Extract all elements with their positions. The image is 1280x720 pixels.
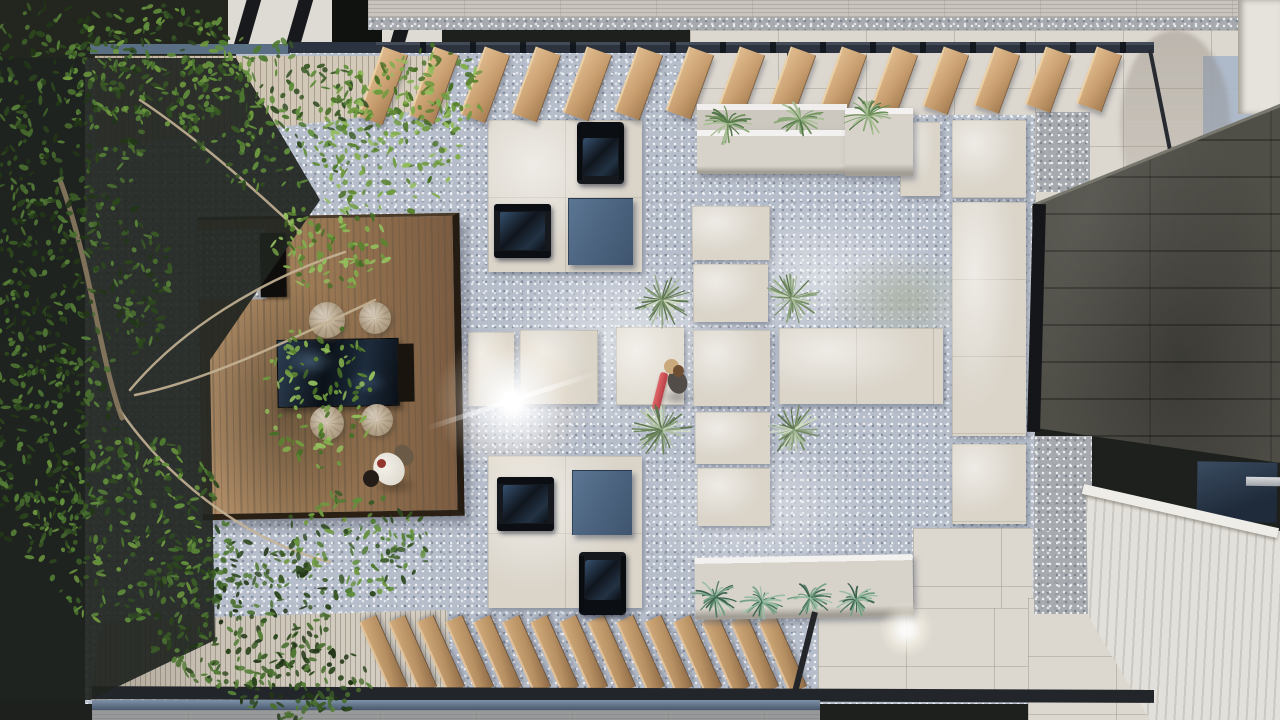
tree-leaf: [28, 171, 35, 177]
chair-arm: [577, 126, 582, 180]
tree-leaf: [16, 240, 25, 249]
tree-leaf: [18, 163, 29, 172]
tree-leaf: [80, 281, 85, 284]
tree-leaf: [67, 528, 75, 535]
tree-leaf: [59, 589, 64, 594]
tree-leaf: [60, 547, 66, 553]
tree-leaf: [72, 67, 79, 75]
tree-leaf: [59, 289, 66, 297]
tree-leaf: [69, 192, 80, 199]
tree-leaf: [69, 514, 73, 522]
tree-leaf: [22, 219, 27, 221]
tree-leaf: [52, 465, 64, 474]
tree-leaf: [8, 377, 20, 388]
tree-leaf: [60, 241, 67, 245]
tree-leaf: [49, 291, 58, 300]
tree-leaf: [74, 365, 80, 371]
tree-leaf: [10, 414, 20, 419]
tree-leaf: [0, 113, 6, 122]
tree-leaf: [45, 305, 51, 310]
tree-leaf: [66, 384, 71, 393]
tree-leaf: [10, 348, 20, 358]
chair-arm: [579, 556, 584, 612]
tree-leaf: [13, 290, 21, 300]
tree-leaf: [53, 301, 63, 307]
tree-leaf: [76, 424, 82, 430]
tree-leaf: [15, 116, 21, 121]
tree-leaf: [19, 498, 25, 507]
tree-leaf: [61, 219, 71, 223]
tree-leaf: [73, 493, 79, 502]
tree-leaf: [53, 71, 60, 75]
tree-leaf: [10, 103, 21, 111]
tree-leaf: [45, 329, 53, 336]
tree-leaf: [7, 74, 13, 83]
tree-leaf: [51, 495, 61, 506]
tree-leaf: [39, 369, 46, 375]
tree-leaf: [8, 170, 12, 176]
tree-leaf: [0, 400, 4, 406]
tree-leaf: [36, 297, 40, 306]
tree-leaf: [24, 165, 29, 171]
tree-leaf: [9, 144, 16, 153]
tree-leaf: [72, 150, 81, 158]
tree-leaf: [55, 199, 63, 210]
tree-leaf: [24, 502, 31, 508]
tree-leaf: [2, 494, 9, 502]
tree-leaf: [72, 605, 79, 615]
lens-flare-small: [878, 602, 934, 658]
tree-leaf: [0, 502, 5, 507]
tree-leaf: [56, 301, 62, 307]
white-column: [1238, 0, 1280, 114]
tree-leaf: [77, 498, 85, 505]
tree-leaf: [68, 360, 74, 366]
tree-leaf: [30, 367, 39, 376]
tree-leaf: [76, 356, 84, 367]
tree-leaf: [35, 239, 38, 245]
tree-leaf: [24, 239, 31, 249]
tree-leaf: [37, 86, 43, 94]
tree-leaf: [35, 523, 40, 526]
tree-leaf: [54, 452, 62, 461]
tree-leaf: [41, 416, 49, 425]
tree-leaf: [14, 118, 23, 128]
tree-leaf: [57, 383, 65, 394]
tree-leaf: [78, 525, 83, 530]
tree-leaf: [46, 240, 51, 246]
tree-leaf: [31, 183, 36, 191]
deck-dining-table: [277, 338, 400, 408]
tree-leaf: [25, 201, 33, 210]
tree-leaf: [77, 117, 84, 128]
tree-leaf: [60, 238, 67, 244]
tree-leaf: [0, 97, 3, 105]
tree-leaf: [10, 177, 19, 186]
tree-leaf: [75, 390, 81, 397]
tree-leaf: [65, 540, 70, 549]
tree-leaf: [67, 88, 77, 96]
tree-leaf: [27, 208, 31, 214]
tree-leaf: [60, 474, 67, 480]
tree-leaf: [37, 77, 46, 88]
tree-leaf: [61, 230, 71, 241]
pouf-stool: [359, 302, 391, 334]
tree-leaf: [54, 331, 61, 339]
chair-seat: [585, 560, 620, 600]
tree-leaf: [74, 272, 80, 277]
tree-leaf: [67, 505, 73, 513]
tree-leaf: [14, 503, 23, 512]
tree-leaf: [38, 345, 43, 353]
tree-leaf: [67, 550, 74, 554]
tree-leaf: [24, 131, 30, 136]
tree-leaf: [14, 304, 19, 309]
tree-leaf: [27, 127, 33, 135]
tree-leaf: [29, 539, 35, 546]
tree-leaf: [64, 344, 75, 351]
tree-leaf: [2, 279, 12, 286]
tree-leaf: [69, 63, 74, 72]
tree-leaf: [61, 219, 68, 223]
tree-leaf: [38, 540, 45, 548]
tree-leaf: [35, 435, 43, 445]
tree-leaf: [17, 372, 27, 379]
tree-leaf: [18, 495, 26, 504]
tree-leaf: [77, 84, 83, 89]
tree-leaf: [54, 380, 63, 387]
tree-leaf: [62, 374, 66, 382]
tree-leaf: [73, 514, 80, 521]
tree-leaf: [17, 140, 23, 147]
courtyard-aerial-render: [0, 0, 1280, 720]
tree-leaf: [42, 125, 50, 134]
tree-leaf: [8, 340, 15, 347]
tree-leaf: [1, 480, 10, 490]
tree-leaf: [5, 294, 10, 302]
tree-leaf: [12, 154, 18, 161]
tree-leaf: [76, 79, 85, 91]
tree-leaf: [52, 133, 58, 143]
tree-leaf: [75, 143, 81, 149]
tree-leaf: [69, 302, 77, 313]
tree-leaf: [70, 546, 77, 552]
tree-leaf: [20, 226, 27, 236]
tree-leaf: [66, 595, 73, 604]
tree-leaf: [41, 139, 47, 146]
tree-leaf: [63, 421, 68, 427]
tree-leaf: [64, 259, 71, 266]
tree-leaf: [53, 59, 56, 65]
pouf-stool: [309, 302, 345, 338]
tree-leaf: [56, 373, 62, 379]
tree-leaf: [66, 210, 74, 216]
tree-leaf: [23, 243, 32, 247]
tree-leaf: [18, 394, 24, 400]
tree-leaf: [8, 72, 15, 79]
tree-leaf: [52, 225, 57, 231]
tree-leaf: [0, 328, 3, 335]
tree-leaf: [19, 219, 26, 226]
deck-table-end-bench: [398, 344, 415, 402]
tree-leaf: [76, 108, 82, 114]
tree-leaf: [55, 255, 65, 260]
door-handle: [1246, 477, 1280, 487]
tree-leaf: [53, 179, 63, 182]
tree-leaf: [41, 306, 47, 314]
tree-leaf: [60, 260, 68, 269]
tree-leaf: [13, 79, 19, 86]
bench-north-block: [845, 108, 913, 176]
tree-leaf: [1, 405, 12, 409]
tree-leaf: [72, 447, 76, 453]
tree-leaf: [72, 526, 79, 531]
tree-leaf: [44, 311, 47, 317]
tree-leaf: [20, 270, 27, 278]
paver: [693, 330, 770, 406]
tree-leaf: [27, 209, 36, 217]
tree-leaf: [9, 123, 18, 130]
tree-leaf: [73, 117, 81, 128]
tree-leaf: [55, 98, 63, 107]
tree-leaf: [12, 403, 23, 412]
tree-leaf: [10, 184, 13, 190]
tree-leaf: [22, 59, 33, 70]
paver: [693, 264, 768, 322]
tree-leaf: [5, 317, 11, 323]
tree-leaf: [49, 359, 55, 363]
pouf-stool: [310, 406, 344, 440]
tree-leaf: [64, 198, 74, 209]
tree-leaf: [78, 472, 82, 481]
tree-leaf: [39, 526, 45, 531]
tree-leaf: [27, 235, 33, 241]
tree-leaf: [27, 128, 35, 138]
tree-leaf: [16, 428, 27, 432]
tree-leaf: [43, 436, 49, 442]
tree-leaf: [51, 400, 59, 405]
tree-leaf: [16, 217, 23, 224]
tree-leaf: [34, 489, 42, 497]
tree-leaf: [79, 580, 83, 587]
gravel-inset-square: [1036, 112, 1090, 192]
tree-leaf: [59, 478, 63, 487]
tree-leaf: [53, 352, 60, 359]
tree-leaf: [42, 344, 46, 351]
tree-leaf: [10, 362, 21, 369]
tree-leaf: [68, 482, 74, 492]
table-reflection: [348, 369, 388, 396]
tree-leaf: [50, 421, 55, 426]
tree-leaf: [23, 458, 32, 466]
tree-leaf: [34, 494, 39, 502]
tree-leaf: [24, 290, 30, 297]
tree-leaf: [33, 219, 38, 226]
tree-leaf: [37, 389, 45, 398]
tree-leaf: [59, 509, 67, 517]
tree-leaf: [70, 67, 75, 73]
tree-leaf: [21, 352, 28, 358]
tree-leaf: [56, 214, 66, 223]
tree-leaf: [35, 330, 43, 335]
tree-leaf: [0, 426, 2, 431]
tree-leaf: [45, 312, 54, 319]
tree-leaf: [15, 403, 22, 412]
tree-leaf: [65, 543, 71, 550]
tree-leaf: [33, 200, 44, 207]
tree-leaf: [8, 337, 14, 342]
tree-leaf: [78, 89, 85, 95]
tree-leaf: [15, 198, 27, 209]
tree-leaf: [69, 522, 77, 526]
tree-leaf: [61, 459, 69, 467]
tree-leaf: [21, 319, 27, 327]
tree-leaf: [60, 531, 69, 539]
tree-leaf: [28, 523, 36, 530]
chair-arm: [619, 126, 624, 180]
tree-leaf: [16, 436, 20, 441]
chair-back: [579, 122, 622, 138]
tree-leaf: [44, 375, 47, 381]
tree-leaf: [45, 343, 56, 349]
tree-leaf: [34, 418, 41, 422]
tree-leaf: [70, 447, 74, 453]
tree-leaf: [56, 401, 65, 410]
tree-leaf: [20, 406, 31, 411]
person-on-deck: [355, 440, 425, 500]
tree-leaf: [3, 535, 14, 543]
tree-leaf: [25, 158, 31, 165]
tree-leaf: [64, 528, 73, 535]
tree-leaf: [49, 213, 58, 223]
tree-leaf: [69, 233, 78, 238]
tree-leaf: [61, 342, 69, 347]
person-head: [363, 470, 379, 487]
tree-leaf: [37, 554, 46, 563]
tree-leaf: [11, 296, 17, 302]
tree-leaf: [0, 299, 7, 306]
tree-leaf: [12, 218, 18, 226]
tree-leaf: [0, 434, 5, 445]
tree-leaf: [63, 97, 70, 105]
tree-leaf: [26, 369, 33, 377]
tree-leaf: [0, 469, 7, 473]
rafter-beam: [284, 0, 314, 46]
tree-leaf: [49, 558, 58, 564]
tree-leaf: [58, 175, 64, 181]
tree-leaf: [7, 483, 14, 491]
tree-leaf: [72, 531, 77, 535]
tree-leaf: [47, 199, 58, 203]
tree-leaf: [48, 497, 56, 502]
paver-long: [952, 202, 1026, 436]
tree-leaf: [1, 228, 7, 234]
tree-leaf: [25, 99, 33, 104]
deck-planter-box: [260, 233, 287, 297]
tree-leaf: [34, 498, 36, 502]
tree-leaf: [59, 167, 63, 177]
tree-leaf: [16, 280, 23, 287]
tree-leaf: [72, 539, 78, 545]
tree-leaf: [39, 211, 47, 219]
tree-leaf: [5, 322, 15, 331]
tree-leaf: [11, 331, 16, 335]
tree-leaf: [34, 404, 42, 410]
tree-leaf: [28, 266, 39, 278]
tree-leaf: [78, 491, 82, 502]
tree-leaf: [0, 150, 8, 157]
tree-leaf: [72, 524, 77, 531]
tree-leaf: [46, 469, 56, 479]
tree-leaf: [6, 462, 14, 469]
tree-leaf: [68, 568, 78, 574]
tree-leaf: [55, 186, 60, 196]
tree-leaf: [63, 302, 72, 311]
tree-leaf: [82, 609, 84, 617]
tree-leaf: [52, 507, 57, 517]
tree-leaf: [5, 471, 14, 480]
lounge-chair-south: [579, 552, 626, 615]
tree-leaf: [42, 198, 49, 206]
tree-leaf: [57, 223, 64, 235]
tree-leaf: [46, 459, 51, 464]
tree-leaf: [8, 279, 15, 286]
tree-leaf: [0, 532, 4, 538]
tree-leaf: [59, 498, 65, 506]
tree-leaf: [13, 493, 19, 503]
tree-leaf: [72, 230, 78, 238]
tree-leaf: [0, 115, 1, 121]
tree-leaf: [41, 269, 48, 277]
tree-leaf: [38, 95, 42, 105]
top-gravel-strip: [368, 17, 1240, 30]
tree-leaf: [35, 365, 39, 374]
tree-leaf: [6, 66, 14, 75]
tree-leaf: [62, 467, 69, 472]
tree-leaf: [30, 304, 38, 312]
tree-leaf: [27, 454, 32, 459]
tree-leaf: [4, 352, 9, 356]
paver-large: [779, 328, 943, 404]
tree-leaf: [50, 82, 56, 93]
tree-leaf: [4, 278, 12, 286]
tree-leaf: [39, 153, 45, 160]
tree-leaf: [22, 522, 29, 527]
tree-leaf: [28, 534, 33, 540]
tree-leaf: [27, 334, 36, 343]
tree-leaf: [64, 123, 73, 130]
tree-leaf: [0, 183, 5, 188]
tree-leaf: [18, 517, 24, 520]
tree-leaf: [26, 443, 36, 452]
tree-leaf: [28, 402, 34, 409]
pouf-stool: [361, 404, 393, 436]
tree-leaf: [9, 241, 19, 245]
top-concrete-wall: [368, 0, 1280, 18]
tree-leaf: [13, 316, 16, 327]
tree-leaf: [46, 318, 56, 327]
tree-leaf: [46, 460, 53, 469]
tree-leaf: [16, 345, 20, 355]
tree-leaf: [49, 446, 55, 453]
tree-leaf: [60, 479, 64, 483]
tree-leaf: [24, 265, 32, 273]
tree-leaf: [0, 239, 3, 244]
tree-leaf: [28, 212, 37, 220]
tree-leaf: [39, 368, 45, 372]
tree-leaf: [42, 369, 48, 376]
tree-leaf: [19, 128, 31, 138]
